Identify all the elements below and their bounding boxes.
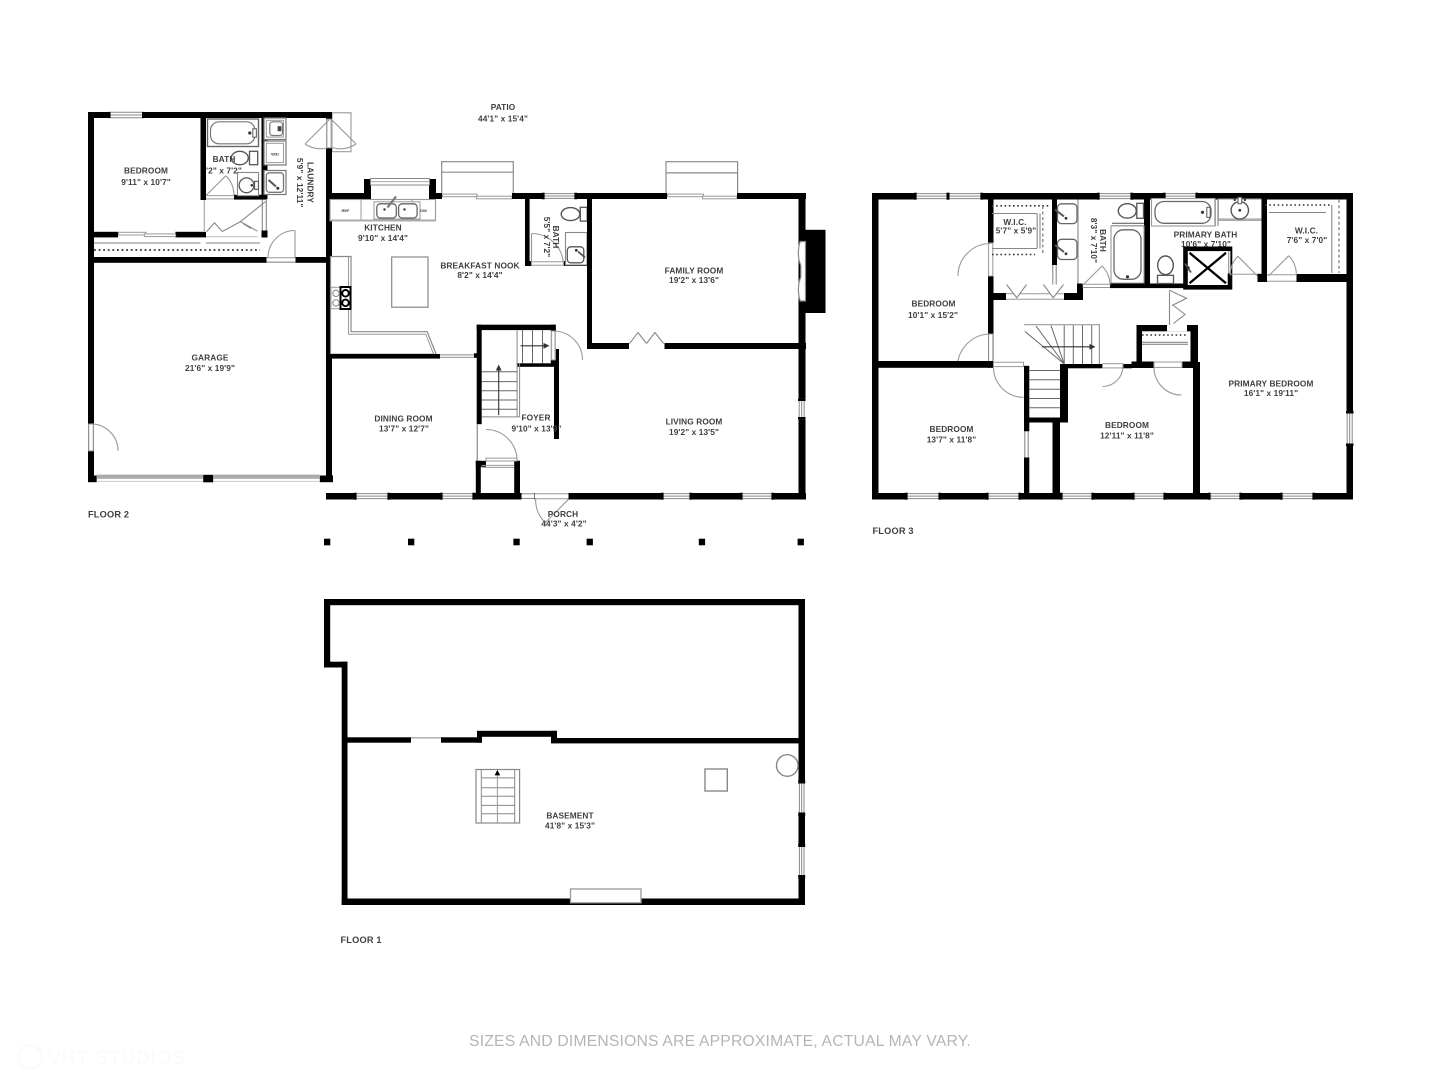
- svg-text:10'1" x 15'2": 10'1" x 15'2": [908, 310, 958, 320]
- svg-text:DINING ROOM: DINING ROOM: [374, 413, 432, 423]
- svg-text:FLOOR 3: FLOOR 3: [873, 526, 914, 536]
- svg-text:BREAKFAST NOOK: BREAKFAST NOOK: [440, 260, 519, 270]
- svg-text:PATIO: PATIO: [491, 102, 516, 112]
- svg-text:'2" x 7'2": '2" x 7'2": [206, 165, 242, 175]
- svg-text:8'3" x 7'10": 8'3" x 7'10": [1089, 218, 1099, 263]
- svg-text:REF: REF: [342, 208, 351, 213]
- svg-text:7'6" x 7'0": 7'6" x 7'0": [1287, 235, 1328, 245]
- svg-text:BEDROOM: BEDROOM: [911, 298, 955, 308]
- svg-text:BEDROOM: BEDROOM: [124, 165, 168, 175]
- svg-text:9'10" x 14'4": 9'10" x 14'4": [358, 233, 408, 243]
- svg-text:GARAGE: GARAGE: [191, 352, 228, 362]
- svg-text:13'7" x 12'7": 13'7" x 12'7": [379, 423, 429, 433]
- svg-text:BASEMENT: BASEMENT: [546, 811, 593, 821]
- svg-text:W/D: W/D: [271, 151, 279, 156]
- svg-text:13'7" x 11'8": 13'7" x 11'8": [927, 434, 977, 444]
- svg-text:PRIMARY BEDROOM: PRIMARY BEDROOM: [1229, 378, 1314, 388]
- svg-text:8'2" x 14'4": 8'2" x 14'4": [457, 270, 502, 280]
- svg-text:SIZES AND DIMENSIONS ARE APPRO: SIZES AND DIMENSIONS ARE APPROXIMATE, AC…: [469, 1033, 971, 1050]
- svg-text:PORCH: PORCH: [548, 509, 578, 519]
- svg-text:12'11" x 11'8": 12'11" x 11'8": [1100, 430, 1154, 440]
- svg-text:FLOOR 2: FLOOR 2: [88, 510, 129, 520]
- svg-text:19'2" x 13'6": 19'2" x 13'6": [669, 275, 719, 285]
- svg-text:BEDROOM: BEDROOM: [929, 424, 973, 434]
- svg-text:44'3" x 4'2": 44'3" x 4'2": [541, 518, 586, 528]
- svg-text:16'1" x 19'11": 16'1" x 19'11": [1244, 388, 1298, 398]
- svg-text:FAMILY ROOM: FAMILY ROOM: [665, 265, 724, 275]
- svg-text:21'6" x 19'9": 21'6" x 19'9": [185, 363, 235, 373]
- svg-text:LAUNDRY: LAUNDRY: [306, 162, 316, 203]
- svg-text:5'7" x 5'9": 5'7" x 5'9": [996, 226, 1037, 236]
- svg-text:BEDROOM: BEDROOM: [1105, 420, 1149, 430]
- svg-text:5'5" x 7'2": 5'5" x 7'2": [542, 217, 552, 258]
- svg-text:19'2" x 13'5": 19'2" x 13'5": [669, 427, 719, 437]
- svg-text:FLOOR 1: FLOOR 1: [341, 935, 382, 945]
- svg-text:VHT STUDIOS: VHT STUDIOS: [48, 1048, 187, 1069]
- svg-text:FOYER: FOYER: [521, 412, 550, 422]
- svg-text:DW: DW: [420, 208, 427, 213]
- svg-text:LIVING ROOM: LIVING ROOM: [666, 416, 723, 426]
- svg-text:KITCHEN: KITCHEN: [364, 222, 402, 232]
- svg-text:W.I.C.: W.I.C.: [1295, 226, 1318, 236]
- svg-text:44'1" x 15'4": 44'1" x 15'4": [478, 114, 528, 124]
- svg-text:9'11" x 10'7": 9'11" x 10'7": [121, 177, 171, 187]
- svg-text:5'9" x 12'11": 5'9" x 12'11": [295, 158, 305, 208]
- svg-text:BATH: BATH: [213, 154, 236, 164]
- svg-text:41'8" x 15'3": 41'8" x 15'3": [545, 821, 595, 831]
- svg-text:9'10" x 13'9": 9'10" x 13'9": [511, 423, 561, 433]
